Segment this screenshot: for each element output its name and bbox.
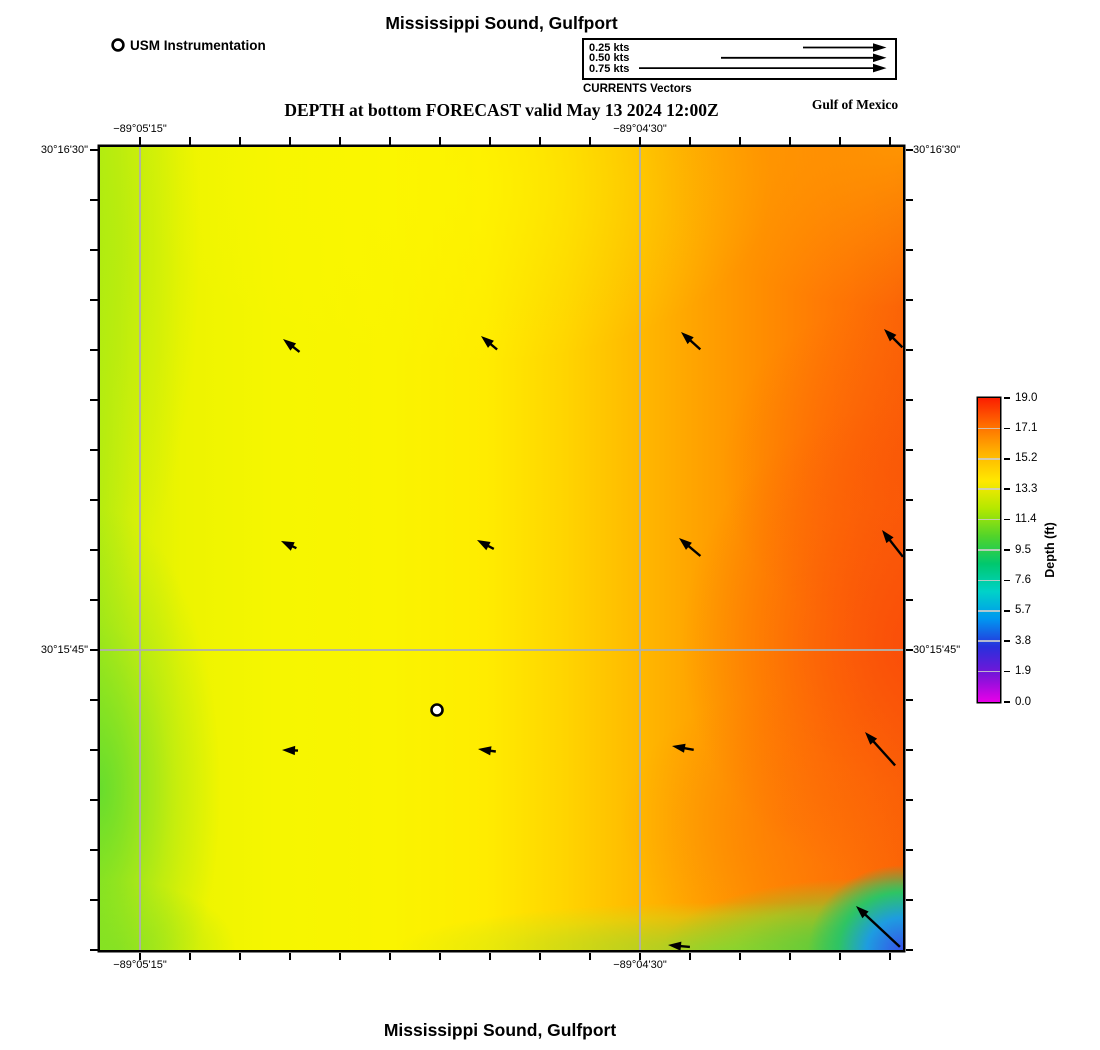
vector-legend-caption: CURRENTS Vectors [583, 83, 692, 95]
axis-tick [906, 649, 914, 651]
axis-tick [389, 953, 391, 961]
legend-arrow-icon [873, 64, 887, 73]
current-vector-arrow-icon [478, 746, 492, 755]
colorbar-tick-label: 3.8 [1015, 635, 1031, 648]
colorbar-tick-label: 19.0 [1015, 392, 1037, 405]
axis-tick [539, 137, 541, 145]
axis-tick [739, 953, 741, 961]
colorbar-tick [1004, 458, 1011, 460]
colorbar-tick-label: 1.9 [1015, 665, 1031, 678]
axis-tick [906, 699, 914, 701]
axis-tick [639, 137, 641, 145]
current-vector-tail [871, 739, 895, 766]
axis-tick [906, 399, 914, 401]
colorbar: 19.017.115.213.311.49.57.65.73.81.90.0 [978, 398, 1100, 702]
axis-tick [90, 549, 98, 551]
axis-tick [906, 499, 914, 501]
forecast-figure: Mississippi Sound, Gulfport USM Instrume… [0, 0, 1100, 1050]
axis-tick [489, 953, 491, 961]
colorbar-tick-label: 7.6 [1015, 574, 1031, 587]
axis-tick [339, 137, 341, 145]
axis-tick [906, 899, 914, 901]
axis-tick [539, 953, 541, 961]
axis-tick [289, 137, 291, 145]
colorbar-separator [978, 640, 1000, 642]
axis-tick [389, 137, 391, 145]
axis-tick [906, 949, 914, 951]
colorbar-tick [1004, 519, 1011, 521]
axis-tick [90, 299, 98, 301]
colorbar-tick-label: 9.5 [1015, 544, 1031, 557]
axis-tick [90, 699, 98, 701]
axis-tick [889, 953, 891, 961]
axis-tick [90, 849, 98, 851]
axis-tick [289, 953, 291, 961]
colorbar-axis-label: Depth (ft) [1043, 522, 1057, 578]
axis-tick [789, 953, 791, 961]
axis-tick [90, 649, 98, 651]
axis-tick [90, 349, 98, 351]
axis-tick [839, 137, 841, 145]
y-tick-label-right-1: 30°16'30" [913, 144, 998, 156]
colorbar-tick [1004, 701, 1011, 703]
colorbar-tick-label: 5.7 [1015, 604, 1031, 617]
axis-tick [239, 137, 241, 145]
x-tick-label-bottom-1: −89°05'15" [85, 959, 195, 971]
axis-tick [906, 549, 914, 551]
colorbar-tick [1004, 610, 1011, 612]
current-vector-arrow-icon [668, 942, 681, 950]
x-tick-label-bottom-2: −89°04'30" [585, 959, 695, 971]
axis-tick [239, 953, 241, 961]
axis-tick [906, 149, 914, 151]
x-tick-label-top-2: −89°04'30" [585, 123, 695, 135]
depth-heatmap [100, 147, 903, 950]
legend-arrows [584, 40, 894, 76]
axis-tick [90, 499, 98, 501]
colorbar-tick [1004, 671, 1011, 673]
station-marker-icon [432, 705, 443, 716]
axis-tick [906, 249, 914, 251]
axis-tick [906, 349, 914, 351]
current-vector-arrow-icon [281, 541, 295, 551]
colorbar-separator [978, 580, 1000, 582]
axis-tick [90, 799, 98, 801]
region-label: Gulf of Mexico [800, 97, 910, 113]
axis-tick [839, 953, 841, 961]
colorbar-tick-label: 13.3 [1015, 483, 1037, 496]
axis-tick [339, 953, 341, 961]
axis-tick [739, 137, 741, 145]
x-tick-label-top-1: −89°05'15" [85, 123, 195, 135]
colorbar-separator [978, 488, 1000, 490]
colorbar-separator [978, 428, 1000, 430]
y-tick-label-left-2: 30°15'45" [16, 644, 88, 656]
colorbar-tick [1004, 549, 1011, 551]
colorbar-tick-label: 15.2 [1015, 452, 1037, 465]
colorbar-separator [978, 549, 1000, 551]
axis-tick [906, 599, 914, 601]
axis-tick [90, 599, 98, 601]
axis-tick [90, 199, 98, 201]
current-vector-tail [863, 912, 900, 947]
axis-tick [90, 749, 98, 751]
axis-tick [789, 137, 791, 145]
colorbar-tick [1004, 397, 1011, 399]
axis-tick [906, 449, 914, 451]
instrument-legend-label: USM Instrumentation [130, 38, 266, 53]
axis-tick [906, 749, 914, 751]
axis-tick [906, 199, 914, 201]
colorbar-tick-label: 17.1 [1015, 422, 1037, 435]
axis-tick [139, 137, 141, 145]
colorbar-tick-label: 0.0 [1015, 696, 1031, 709]
colorbar-separator [978, 458, 1000, 460]
axis-tick [589, 137, 591, 145]
axis-tick [90, 899, 98, 901]
instrument-legend-marker-icon [110, 37, 126, 53]
axis-tick [90, 449, 98, 451]
colorbar-tick [1004, 428, 1011, 430]
colorbar-tick-label: 11.4 [1015, 513, 1037, 526]
axis-tick [439, 137, 441, 145]
axis-tick [90, 149, 98, 151]
colorbar-separator [978, 671, 1000, 673]
colorbar-tick [1004, 640, 1011, 642]
axis-tick [189, 137, 191, 145]
axis-tick [439, 953, 441, 961]
vector-layer [100, 147, 903, 950]
y-tick-label-left-1: 30°16'30" [16, 144, 88, 156]
current-vector-arrow-icon [477, 540, 491, 550]
current-vector-arrow-icon [672, 744, 686, 753]
colorbar-tick [1004, 580, 1011, 582]
colorbar-separator [978, 610, 1000, 612]
footer-title: Mississippi Sound, Gulfport [0, 1020, 1000, 1041]
current-vector-arrow-icon [282, 746, 295, 755]
axis-tick [90, 399, 98, 401]
axis-tick [906, 849, 914, 851]
axis-tick [689, 137, 691, 145]
axis-tick [906, 299, 914, 301]
axis-tick [90, 249, 98, 251]
page-title: Mississippi Sound, Gulfport [0, 13, 1003, 34]
colorbar-tick [1004, 488, 1011, 490]
colorbar-separator [978, 519, 1000, 521]
axis-tick [90, 949, 98, 951]
current-vector-legend-box: 0.25 kts 0.50 kts 0.75 kts [582, 38, 897, 80]
axis-tick [489, 137, 491, 145]
axis-tick [906, 799, 914, 801]
legend-arrow-icon [873, 54, 887, 63]
axis-tick [889, 137, 891, 145]
legend-arrow-icon [873, 43, 887, 52]
